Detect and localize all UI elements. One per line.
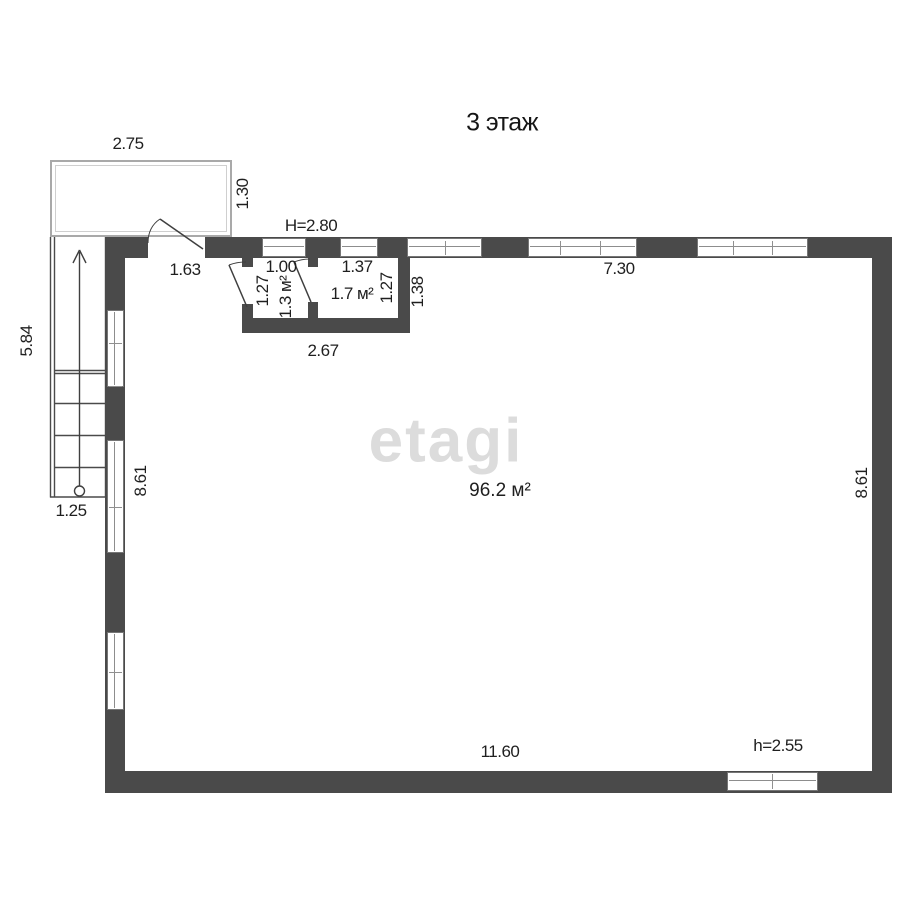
label-room2-area: 1.7 м² [331, 284, 374, 304]
dim-stair-run: 5.84 [17, 325, 37, 356]
room1-door [229, 262, 247, 307]
dim-ceiling-height: H=2.80 [285, 216, 337, 236]
rooms-divider-bottom-stub [308, 302, 318, 318]
dim-top-window-run: 7.30 [603, 259, 634, 279]
label-room1-area: 1.3 м² [276, 276, 296, 319]
window-left-2 [107, 440, 124, 553]
stairs-up-arrow-icon [73, 250, 86, 496]
window-bottom [727, 772, 818, 791]
balcony-door-opening [148, 237, 205, 258]
rooms-divider-top-stub [308, 258, 318, 267]
dim-balcony-width: 2.75 [112, 134, 143, 154]
room1-left-wall-top-stub [242, 258, 253, 267]
dim-left-inner-depth: 8.61 [131, 465, 151, 496]
balcony [50, 160, 232, 237]
dim-bottom-inner-width: 11.60 [481, 742, 520, 762]
window-top-3 [407, 238, 482, 257]
window-top-1 [262, 238, 306, 257]
staircase [50, 237, 106, 498]
window-left-3 [107, 632, 124, 710]
dim-balcony-depth: 1.30 [233, 178, 253, 209]
window-top-2 [340, 238, 378, 257]
page-title: 3 этаж [466, 109, 538, 138]
dim-room1-depth: 1.27 [253, 275, 273, 306]
window-top-5 [697, 238, 808, 257]
balcony-inner-line [55, 165, 227, 232]
window-left-1 [107, 310, 124, 387]
rooms-bottom-wall [242, 318, 410, 333]
wall-right [872, 237, 892, 793]
label-main-room-area: 96.2 м² [469, 480, 531, 502]
dim-bottom-window-height: h=2.55 [753, 736, 802, 756]
dim-room1-width: 1.00 [265, 257, 296, 277]
dim-room2-width: 1.37 [341, 257, 372, 277]
dim-rooms-width: 2.67 [307, 341, 338, 361]
dim-right-inner-depth: 8.61 [852, 467, 872, 498]
dim-rooms-depth-outer: 1.38 [408, 276, 428, 307]
dim-stair-width: 1.25 [55, 501, 86, 521]
window-mullions [109, 241, 773, 789]
window-top-4 [528, 238, 637, 257]
dim-room2-depth: 1.27 [377, 272, 397, 303]
dim-balcony-door-offset: 1.63 [169, 260, 200, 280]
room1-left-wall-bottom-stub [242, 304, 253, 318]
watermark: etagi [369, 406, 524, 477]
floor-plan: 3 этаж etagi [0, 0, 900, 900]
